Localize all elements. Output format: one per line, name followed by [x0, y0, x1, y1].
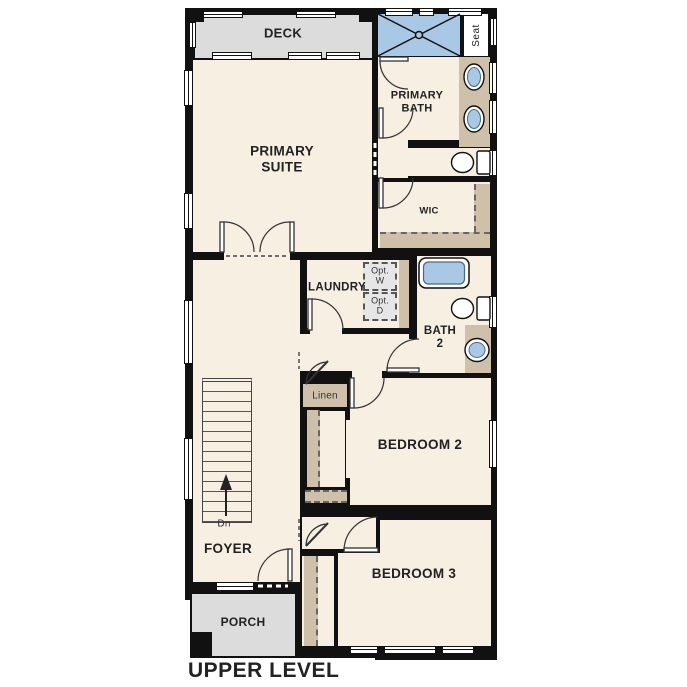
- opt-dryer-line1: Opt.: [371, 296, 389, 306]
- foyer-label: FOYER: [204, 541, 252, 557]
- bedroom3-label: BEDROOM 3: [372, 566, 456, 582]
- window: [385, 8, 413, 16]
- opening-suite-doors: [224, 252, 290, 260]
- bedroom2-label: BEDROOM 2: [378, 437, 462, 453]
- wic-shelf-right: [474, 184, 490, 232]
- window: [189, 22, 196, 48]
- shower-seat-label: Seat: [470, 24, 481, 47]
- stairs-down-label: Dn: [217, 518, 230, 530]
- window: [288, 52, 322, 60]
- bedroom3-closet-shelf: [304, 556, 318, 646]
- window: [184, 300, 193, 364]
- toilet-nook-floor: [378, 147, 490, 178]
- window: [384, 646, 436, 654]
- laundry-counter: [399, 260, 409, 328]
- bath2-label-line1: BATH: [424, 325, 456, 338]
- window: [419, 8, 434, 16]
- bath2-label-line2: 2: [424, 338, 456, 351]
- level-title: UPPER LEVEL: [188, 659, 339, 683]
- bath2-vanity-counter: [465, 325, 491, 373]
- opening-bath2: [409, 339, 417, 373]
- window: [326, 52, 360, 60]
- opt-washer-line2: W: [371, 276, 389, 286]
- bath2-label: BATH 2: [424, 325, 456, 351]
- window: [489, 100, 497, 134]
- window: [489, 150, 497, 176]
- deck-post-right: [359, 9, 374, 22]
- window: [184, 70, 193, 106]
- floor-plan: Seat DECK PRIMARY SUITE PRIMARY BATH: [0, 0, 687, 687]
- porch-label: PORCH: [221, 616, 266, 630]
- window: [448, 8, 482, 16]
- porch-corner-post: [192, 632, 212, 656]
- window: [212, 52, 252, 60]
- window: [489, 62, 497, 94]
- primary-bath-label-line1: PRIMARY: [391, 89, 443, 102]
- opening-bedroom2-closet: [346, 420, 354, 478]
- bedroom2-closet-shelf: [307, 410, 320, 487]
- window: [184, 438, 193, 500]
- primary-suite-label-line1: PRIMARY: [250, 143, 314, 159]
- window: [442, 646, 474, 654]
- laundry-label: LAUNDRY: [308, 281, 366, 294]
- opt-dryer-label: Opt. D: [371, 296, 389, 317]
- bedroom3-floor: [380, 520, 491, 646]
- window: [184, 193, 193, 229]
- wall-wic-top: [408, 176, 490, 182]
- hall-closet-shelf: [305, 490, 347, 503]
- opt-washer-line1: Opt.: [371, 266, 389, 276]
- deck-post-left: [189, 9, 204, 22]
- window: [350, 646, 378, 654]
- primary-bath-label: PRIMARY BATH: [391, 89, 443, 114]
- window: [489, 420, 497, 468]
- opt-washer-label: Opt. W: [371, 266, 389, 287]
- shower-seat: Seat: [462, 14, 488, 56]
- primary-bath-label-line2: BATH: [391, 102, 443, 115]
- primary-vanity-counter: [459, 57, 490, 147]
- deck-label: DECK: [264, 27, 302, 42]
- window: [203, 11, 243, 18]
- opening-bedroom2: [352, 371, 382, 378]
- shower-pan: [378, 14, 460, 56]
- window: [216, 582, 254, 591]
- window: [296, 11, 336, 18]
- hall-floor: [302, 517, 376, 549]
- window: [490, 18, 497, 46]
- opt-dryer-line2: D: [371, 306, 389, 316]
- wic-shelf-bottom: [380, 232, 490, 248]
- wic-label: WIC: [419, 207, 438, 218]
- primary-suite-label-line2: SUITE: [250, 159, 314, 175]
- window: [489, 296, 497, 328]
- staircase: [202, 378, 252, 523]
- primary-suite-label: PRIMARY SUITE: [250, 143, 314, 174]
- corridor-floor: [300, 334, 409, 371]
- opening-laundry: [310, 328, 342, 334]
- linen-label: Linen: [312, 390, 337, 402]
